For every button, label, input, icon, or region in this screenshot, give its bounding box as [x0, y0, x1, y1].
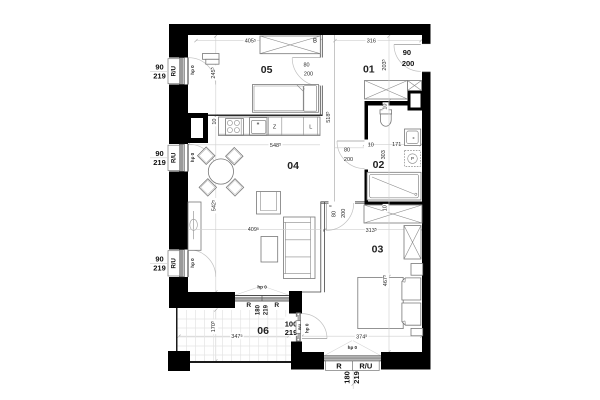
svg-text:R: R [246, 302, 251, 309]
svg-text:hp 0: hp 0 [190, 65, 195, 75]
svg-text:200: 200 [341, 209, 347, 218]
svg-text:180: 180 [255, 304, 261, 315]
svg-text:219: 219 [264, 304, 270, 315]
svg-text:R/U: R/U [359, 362, 372, 371]
svg-text:hp 0: hp 0 [348, 345, 358, 350]
svg-text:80: 80 [303, 62, 309, 68]
svg-text:02: 02 [373, 159, 385, 171]
svg-text:hp 0: hp 0 [304, 323, 309, 333]
svg-text:171: 171 [392, 142, 401, 148]
svg-text:10: 10 [382, 104, 388, 110]
svg-text:180: 180 [343, 371, 352, 384]
svg-text:P: P [411, 156, 414, 161]
svg-text:90: 90 [155, 255, 163, 264]
svg-text:90: 90 [403, 48, 411, 57]
svg-text:316: 316 [367, 39, 376, 45]
svg-text:03: 03 [372, 244, 384, 256]
svg-text:L: L [309, 125, 312, 131]
svg-text:200: 200 [304, 72, 313, 78]
svg-text:hp 0: hp 0 [190, 258, 195, 268]
svg-text:04: 04 [287, 160, 299, 172]
svg-text:hp 0: hp 0 [257, 284, 267, 289]
svg-text:05: 05 [261, 64, 273, 76]
svg-text:219: 219 [153, 158, 166, 167]
svg-text:80: 80 [332, 211, 338, 217]
svg-text:R/U: R/U [298, 324, 302, 330]
svg-text:R: R [336, 362, 342, 371]
svg-text:219: 219 [352, 371, 361, 384]
svg-text:200: 200 [344, 157, 353, 163]
svg-text:303: 303 [381, 150, 387, 159]
svg-text:8: 8 [323, 229, 325, 233]
svg-text:B: B [313, 39, 317, 45]
svg-text:8: 8 [329, 205, 333, 207]
svg-text:219: 219 [153, 72, 166, 81]
svg-text:10: 10 [212, 119, 218, 125]
svg-text:R/U: R/U [171, 258, 177, 268]
svg-text:10: 10 [382, 205, 388, 211]
svg-text:80: 80 [344, 148, 350, 154]
svg-text:06: 06 [257, 325, 269, 337]
svg-text:hp 0: hp 0 [190, 152, 195, 162]
svg-text:219: 219 [153, 264, 166, 273]
svg-text:R/U: R/U [171, 153, 177, 163]
svg-text:219: 219 [285, 328, 298, 337]
svg-text:R: R [274, 302, 279, 309]
svg-text:01: 01 [363, 64, 375, 76]
svg-text:90: 90 [155, 63, 163, 72]
svg-text:10: 10 [368, 142, 374, 148]
svg-text:90: 90 [155, 149, 163, 158]
svg-text:R/U: R/U [171, 66, 177, 76]
svg-text:200: 200 [402, 59, 415, 68]
